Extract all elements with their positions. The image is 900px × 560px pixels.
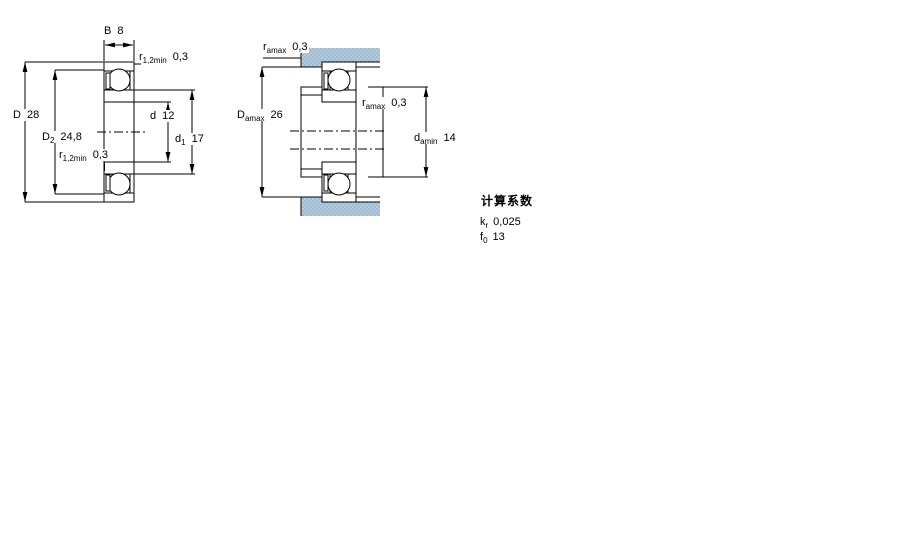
dim-label-d: d12: [149, 110, 175, 122]
ball-bottom: [328, 173, 350, 195]
shield-icon-top: [106, 73, 110, 89]
dim-value: 26: [271, 109, 283, 121]
dim-value: 0,3: [292, 41, 307, 53]
dim-sub: amin: [420, 137, 437, 146]
dim-label-r12-bottom: r1,2min0,3: [58, 149, 109, 161]
factor-value: 13: [493, 231, 505, 243]
factor-sub: 0: [483, 236, 487, 245]
right-view-drawing: [262, 48, 428, 216]
dim-value: 0,3: [391, 97, 406, 109]
housing-section-top: [301, 48, 380, 67]
dim-sub: 1,2min: [63, 154, 87, 163]
dim-value: 24,8: [60, 131, 81, 143]
shield-icon-top: [324, 73, 328, 89]
dim-value: 8: [117, 25, 123, 37]
factor-row-kr: kr0,025: [480, 216, 521, 228]
inner-ring-top: [104, 90, 134, 102]
B-extension-lines: [104, 40, 134, 61]
dim-label-D2: D224,8: [41, 131, 83, 143]
ball-top: [108, 69, 130, 91]
technical-drawing: [0, 0, 900, 560]
dim-base: D: [13, 109, 21, 121]
dim-value: 12: [162, 110, 174, 122]
dim-sub: 1,2min: [143, 56, 167, 65]
dim-base: d: [150, 110, 156, 122]
dim-sub: amax: [366, 102, 386, 111]
dim-value: 14: [443, 132, 455, 144]
bearing-drawing-page: B8 r1,2min0,3 D28 D224,8 r1,2min0,3 d12 …: [0, 0, 900, 560]
dim-label-ra-top: ramax0,3: [262, 41, 309, 53]
dim-label-D: D28: [12, 109, 40, 121]
dim-value: 28: [27, 109, 39, 121]
dim-sub: 1: [181, 138, 185, 147]
shaft-shoulder-top: [301, 87, 322, 95]
dim-value: 0,3: [93, 149, 108, 161]
ball-bottom: [108, 173, 130, 195]
dim-sub: 2: [50, 136, 54, 145]
dim-sub: amax: [267, 46, 287, 55]
dim-label-B: B8: [103, 25, 124, 37]
dim-base: D: [237, 109, 245, 121]
center-lines: [290, 131, 386, 149]
inner-ring-bottom: [322, 162, 356, 174]
inner-ring-bottom: [104, 162, 134, 174]
shield-icon-bottom: [106, 175, 110, 191]
dim-value: 17: [192, 133, 204, 145]
dim-label-Damax: Damax26: [236, 109, 284, 121]
dim-label-d1: d117: [174, 133, 205, 145]
dim-sub: amax: [245, 114, 265, 123]
dim-label-damin: damin14: [413, 132, 457, 144]
dim-label-r12-top: r1,2min0,3: [138, 51, 189, 63]
shaft-shoulder-bottom: [301, 169, 322, 177]
dim-value: 0,3: [173, 51, 188, 63]
dim-base: B: [104, 25, 111, 37]
factor-sub: r: [486, 221, 489, 230]
factor-row-f0: f013: [480, 231, 505, 243]
ball-top: [328, 69, 350, 91]
calculation-factors-title: 计算系数: [481, 192, 533, 209]
housing-section-bottom: [301, 197, 380, 216]
dim-label-ra-mid: ramax0,3: [361, 97, 408, 109]
Da-extension-lines: [262, 67, 301, 197]
inner-ring-top: [322, 90, 356, 102]
shield-icon-bottom: [324, 175, 328, 191]
factor-value: 0,025: [493, 216, 521, 228]
dim-base: D: [42, 131, 50, 143]
